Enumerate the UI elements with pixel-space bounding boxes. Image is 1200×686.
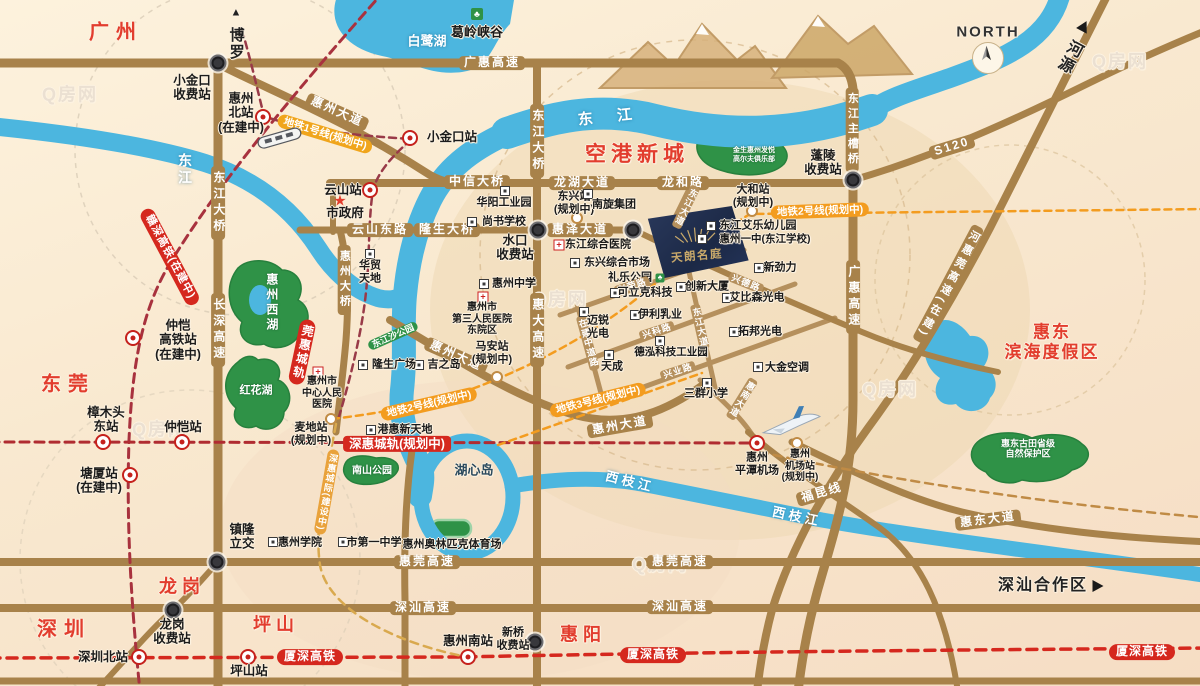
station-label-airport-station: 惠州 机场站 (规划中)	[782, 449, 819, 484]
watermark: Q房网	[1092, 52, 1148, 73]
station-icon-pingshan	[240, 649, 256, 665]
poi-label-chuangxin-tower: 创新大厦	[685, 281, 729, 294]
station-label-xiaojinkou-toll: 小金口 收费站	[173, 74, 211, 103]
poi-label-kelike: 可立克科技	[618, 287, 673, 300]
road-label-longhe-rd: 龙和路	[657, 176, 709, 190]
planned-station-icon-maan	[491, 371, 503, 383]
mall-icon	[358, 360, 368, 370]
rail-label-shenhui-rail: 深惠城轨(规划中)	[343, 436, 451, 452]
station-label-pingshan: 坪山站	[230, 664, 268, 678]
mall-icon	[366, 425, 376, 435]
toll-gate-icon	[165, 602, 182, 619]
market-icon	[570, 258, 580, 268]
park-label-nanshan: 南山公园	[352, 465, 392, 477]
road-label-yunshandong-rd: 云山东路	[347, 223, 413, 237]
region-label-pingshan: 坪山	[253, 615, 299, 636]
station-label-xiaojinkou: 小金口站	[427, 130, 477, 144]
poi-label-third-hospital: 惠州市 第三人民医院 东院区	[452, 302, 512, 337]
station-label-shenzhen-north: 深圳北站	[78, 650, 128, 664]
poi-label-dongxing-market: 东兴综合市场	[584, 257, 650, 270]
station-label-airport: 惠州 平潭机场	[735, 451, 779, 476]
park-icon: ♣	[656, 274, 665, 283]
station-label-zhongkai-hsr: 仲恺 高铁站 (在建中)	[155, 318, 201, 361]
park-label-geling-canyon: 葛岭峡谷	[451, 26, 503, 41]
station-label-zhangmutou: 樟木头 东站	[87, 406, 125, 435]
region-label-shenshan-zone: 深汕合作区	[998, 577, 1088, 595]
station-icon-zhongkai	[174, 434, 190, 450]
station-label-huizhou-north: 惠州 北站 (在建中)	[218, 91, 264, 134]
stadium-label-olympic: 惠州奥林匹克体育场	[403, 539, 502, 552]
region-label-boluo: 博罗	[227, 27, 244, 61]
road-label-longhu-ave: 龙湖大道	[549, 176, 615, 190]
poi-label-dehong-park: 德泓科技工业园	[634, 346, 708, 358]
station-label-longgang-toll: 龙岗 收费站	[153, 618, 191, 647]
poi-label-huayang-park: 华阳工业园	[477, 197, 532, 210]
road-label-huiguan-expwy: 惠莞高速	[394, 555, 460, 569]
north-arrow-icon: ▲	[231, 7, 242, 20]
poi-label-absen: 艾比森光电	[730, 292, 785, 305]
interchange-icon	[209, 554, 226, 571]
road-label-dongjiang-bridge: 东江大桥	[530, 104, 544, 178]
road-label-huizhou-bridge: 惠州大桥	[338, 245, 351, 315]
station-label-dahe: 大和站 (规划中)	[733, 183, 773, 208]
building-icon	[583, 189, 593, 199]
poi-label-xinjinli: 新劲力	[764, 262, 797, 275]
poi-label-nanxuan: 南旋集团	[592, 199, 636, 212]
road-label-huiguan-expwy: 惠莞高速	[647, 555, 713, 569]
station-label-zhongkai: 仲恺站	[164, 420, 202, 434]
poi-label-jusco: 吉之岛	[428, 359, 461, 372]
school-icon	[467, 217, 477, 227]
school-icon	[479, 279, 489, 289]
rail-label-xiashen-hsr: 厦深高铁	[620, 647, 686, 663]
station-icon-zhongkai-hsr	[125, 330, 141, 346]
poi-label-government: 市政府	[326, 206, 364, 220]
compass-icon	[972, 42, 1004, 74]
road-label-huize-ave: 惠泽大道	[547, 223, 613, 237]
school-icon	[706, 221, 716, 231]
poi-label-dongjiang-hospital: 东江综合医院	[565, 239, 631, 252]
rail-label-xiashen-hsr: 厦深高铁	[1109, 644, 1175, 660]
region-label-huidong-resort: 惠东 滨海度假区	[1005, 322, 1100, 361]
poi-label-huamao: 华贸 天地	[359, 259, 381, 284]
project-name: 天朗名庭	[670, 245, 723, 265]
poi-label-huizhou-middle-school: 惠州中学	[492, 278, 536, 291]
region-label-guangzhou: 广州	[89, 22, 143, 45]
poi-label-yili: 伊利乳业	[638, 309, 682, 322]
poi-label-sanqun-school: 三群小学	[684, 388, 728, 401]
road-label-shenshan-expwy: 深汕高速	[390, 601, 456, 615]
park-icon: ♣	[471, 8, 483, 20]
road-label-dongjiang-bridge: 东江大桥	[211, 166, 225, 240]
poi-label-center-hospital: 惠州市 中心人民 医院	[302, 376, 342, 411]
station-label-maan: 马安站 (规划中)	[472, 340, 512, 365]
station-label-shuikou-toll: 水口 收费站	[496, 234, 534, 263]
road-label-guanghui-expwy: 广惠高速	[846, 260, 860, 334]
toll-gate-icon	[845, 172, 862, 189]
park-label-honghua-lake: 红花湖	[240, 385, 273, 398]
poi-label-aile-kindergarten: 东江艾乐幼儿园	[720, 220, 797, 233]
station-icon-shenzhen-north	[131, 649, 147, 665]
watermark: Q房网	[862, 380, 918, 401]
station-icon-huizhou-south	[460, 649, 476, 665]
poi-label-tuobang: 拓邦光电	[738, 326, 782, 339]
mall-icon	[365, 249, 375, 259]
school-icon	[702, 378, 712, 388]
lake-label-bailu: 白鹭湖	[407, 35, 446, 50]
mountains	[600, 16, 912, 88]
poi-label-first-middle-school: 市第一中学	[347, 537, 402, 550]
location-map: Q房网 Q房网 Q房网 Q房网 Q房网 Q房网 天朗名庭 NORTH 广州 东莞…	[0, 0, 1200, 686]
compass-label: NORTH	[956, 23, 1019, 40]
reserve-label-gutian: 惠东古田省级 自然保护区	[1001, 439, 1055, 460]
road-label-shenshan-expwy: 深汕高速	[647, 600, 713, 614]
road-label-changshen-expwy: 长深高速	[211, 293, 225, 367]
station-label-xinqiao-toll: 新桥 收费站	[497, 626, 530, 651]
road-label-guanghui-expwy: 广惠高速	[459, 56, 525, 70]
industry-icon	[500, 186, 510, 196]
station-icon-xiaojinkou	[402, 130, 418, 146]
poi-label-huizhou-college: 惠州学院	[278, 537, 322, 550]
road-label-dongjiang-main-bridge: 东江主槽桥	[846, 88, 859, 173]
industry-icon	[655, 336, 665, 346]
station-icon-yunshan	[362, 182, 378, 198]
river-label-dongjiang-west: 东江	[177, 153, 193, 187]
interchange-icon	[625, 222, 642, 239]
poi-label-mairui: 迈锐 光电	[587, 314, 609, 339]
building-icon	[604, 350, 614, 360]
rail-label-xiashen-hsr: 厦深高铁	[277, 649, 343, 665]
island-label-huxin: 湖心岛	[454, 464, 493, 479]
golf-club-label: 金生惠州发悦 高尔夫俱乐部	[733, 146, 775, 164]
building-icon	[753, 362, 763, 372]
station-icon-tangxia	[122, 467, 138, 483]
region-label-longgang: 龙岗	[159, 577, 205, 598]
school-icon	[268, 537, 278, 547]
poi-label-tiancheng: 天成	[601, 361, 623, 374]
school-icon	[697, 234, 707, 244]
region-label-shenzhen: 深圳	[37, 619, 91, 642]
region-label-huiyang: 惠阳	[560, 625, 606, 646]
park-label-west-lake: 惠州西湖	[264, 273, 278, 333]
road-label-huida-expwy: 惠大高速	[530, 293, 544, 367]
watermark: Q房网	[42, 85, 98, 106]
interchange-label-zhenlong: 镇隆 立交	[229, 523, 254, 552]
station-label-huizhou-south: 惠州南站	[443, 634, 493, 648]
poi-label-longsheng-plaza: 隆生广场	[372, 359, 416, 372]
toll-gate-icon	[210, 55, 227, 72]
station-icon-zhangmutou	[95, 434, 111, 450]
region-label-konggang-newtown: 空港新城	[585, 143, 689, 167]
direction-arrow-icon	[1093, 580, 1104, 592]
station-label-tangxia: 塘厦站 (在建中)	[76, 467, 122, 496]
station-label-pengling-toll: 蓬陵 收费站	[804, 149, 842, 178]
building-icon	[754, 263, 764, 273]
poi-label-ganghui: 港惠新天地	[378, 424, 433, 437]
poi-label-shangshu-school: 尚书学校	[482, 216, 526, 229]
poi-label-daikin: 大金空调	[765, 362, 809, 375]
hospital-icon: +	[554, 240, 565, 251]
poi-label-yizhong-school: 惠州一中(东江学校)	[720, 233, 811, 245]
station-label-maidi: 麦地站 (规划中)	[291, 421, 331, 446]
region-label-dongguan: 东莞	[41, 374, 95, 397]
